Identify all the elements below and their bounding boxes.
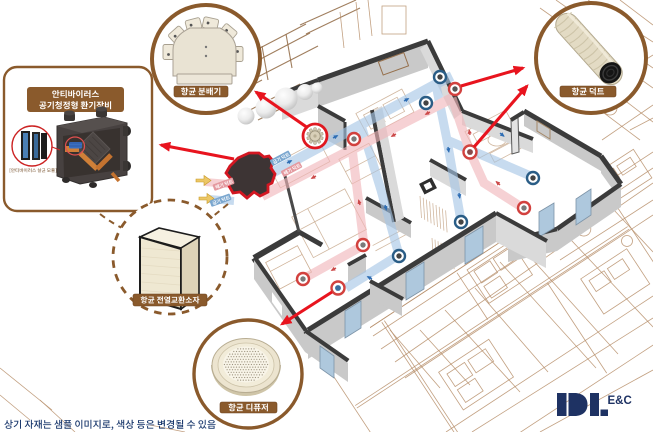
svg-text:E&C: E&C	[608, 395, 632, 407]
